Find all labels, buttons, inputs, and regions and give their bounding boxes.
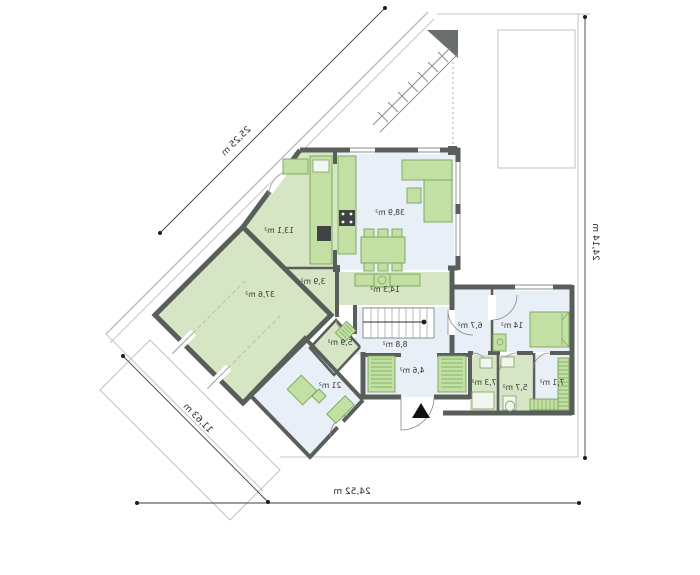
label-garage: 37,6 m² bbox=[245, 290, 275, 299]
floor-plan-svg: 38,9 m² 13,1 m² 37,6 m² 14,3 m² 3,9 m² 5… bbox=[0, 0, 700, 575]
label-pantry: 3,9 m² bbox=[301, 277, 326, 286]
label-corridor: 6,7 m² bbox=[458, 321, 483, 330]
label-bath-large: 7,3 m² bbox=[472, 378, 497, 387]
label-entry: 4,6 m² bbox=[400, 366, 425, 375]
entrance-arrow-icon bbox=[412, 403, 430, 418]
label-bath-small: 5,7 m² bbox=[503, 383, 528, 392]
label-dining: 14,3 m² bbox=[370, 285, 400, 294]
label-wardrobe: 7,1 m² bbox=[540, 378, 565, 387]
label-hall: 8,8 m² bbox=[383, 340, 408, 349]
neighbor-pad bbox=[498, 30, 575, 168]
mirrored-plan: 38,9 m² 13,1 m² 37,6 m² 14,3 m² 3,9 m² 5… bbox=[100, 6, 600, 520]
dim-left-diagonal: 25,25 m bbox=[220, 125, 254, 159]
north-wedge-icon bbox=[427, 30, 458, 58]
label-living: 38,9 m² bbox=[375, 208, 405, 217]
label-boiler: 5,9 m² bbox=[328, 338, 353, 347]
label-bedroom: 14 m² bbox=[501, 321, 524, 330]
dim-right-side: 24,14 m bbox=[590, 223, 600, 260]
dim-bottom: 24,52 m bbox=[333, 487, 370, 497]
stairs bbox=[363, 308, 434, 338]
label-office: 21 m² bbox=[319, 381, 342, 390]
floor-plan-page: 38,9 m² 13,1 m² 37,6 m² 14,3 m² 3,9 m² 5… bbox=[0, 0, 700, 575]
label-kitchen: 13,1 m² bbox=[264, 226, 294, 235]
